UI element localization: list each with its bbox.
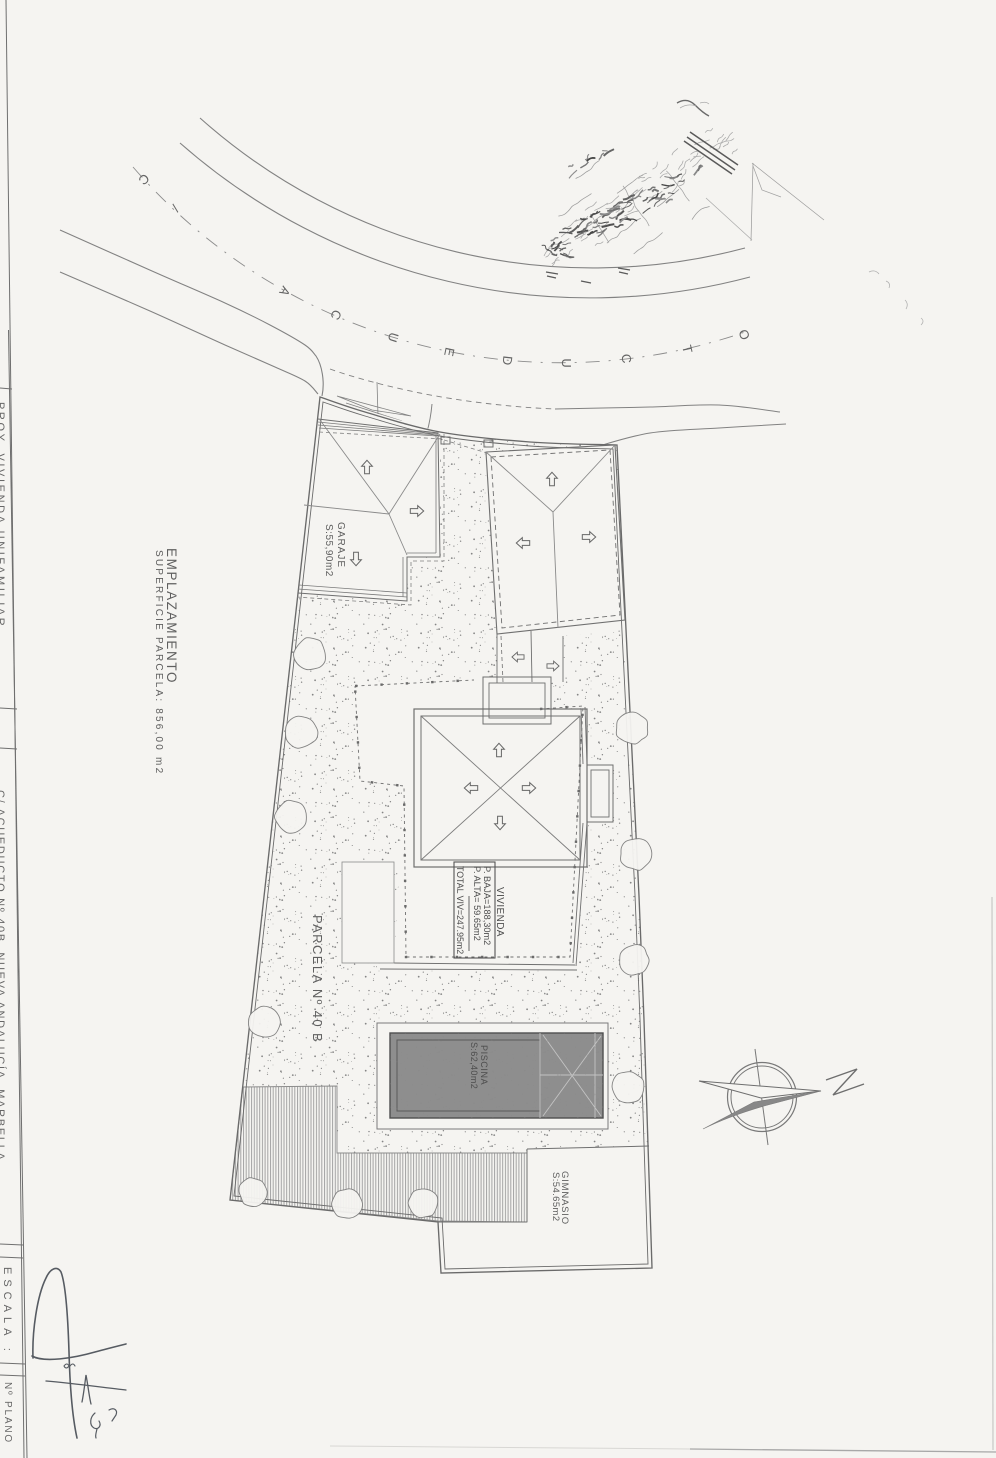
svg-text:SUPERFICIE PARCELA: 856,00 m2: SUPERFICIE PARCELA: 856,00 m2 — [153, 550, 164, 775]
svg-text:S:62,40m2: S:62,40m2 — [469, 1042, 479, 1089]
svg-text:GARAJE: GARAJE — [335, 522, 346, 568]
svg-text:Nº PLANO: Nº PLANO — [2, 1382, 13, 1444]
svg-text:TOTAL VIV=247.95m2: TOTAL VIV=247.95m2 — [455, 866, 465, 954]
svg-text:P. BAJA=188,30m2: P. BAJA=188,30m2 — [482, 866, 492, 945]
svg-text:C/ ACUEDUCTO Nº 40B. NUEVA AND: C/ ACUEDUCTO Nº 40B. NUEVA ANDALUCÍA. MA… — [0, 790, 7, 1162]
svg-text:D: D — [500, 355, 516, 366]
svg-text:P. ALTA= 59.65m2: P. ALTA= 59.65m2 — [472, 866, 482, 941]
svg-text:S:55,90m2: S:55,90m2 — [323, 524, 334, 577]
svg-text:U: U — [559, 358, 574, 367]
svg-text:EMPLAZAMIENTO: EMPLAZAMIENTO — [164, 548, 179, 684]
svg-text:C: C — [619, 353, 635, 364]
svg-text:VIVIENDA: VIVIENDA — [494, 887, 505, 937]
svg-text:PROY. VIVIENDA UNIFAMILIAR: PROY. VIVIENDA UNIFAMILIAR — [0, 402, 6, 628]
svg-text:ESCALA :: ESCALA : — [1, 1267, 13, 1356]
svg-text:PISCINA: PISCINA — [479, 1045, 489, 1085]
svg-text:S:54.65m2: S:54.65m2 — [550, 1172, 561, 1222]
svg-text:PARCELA Nº 40 B: PARCELA Nº 40 B — [310, 915, 325, 1043]
